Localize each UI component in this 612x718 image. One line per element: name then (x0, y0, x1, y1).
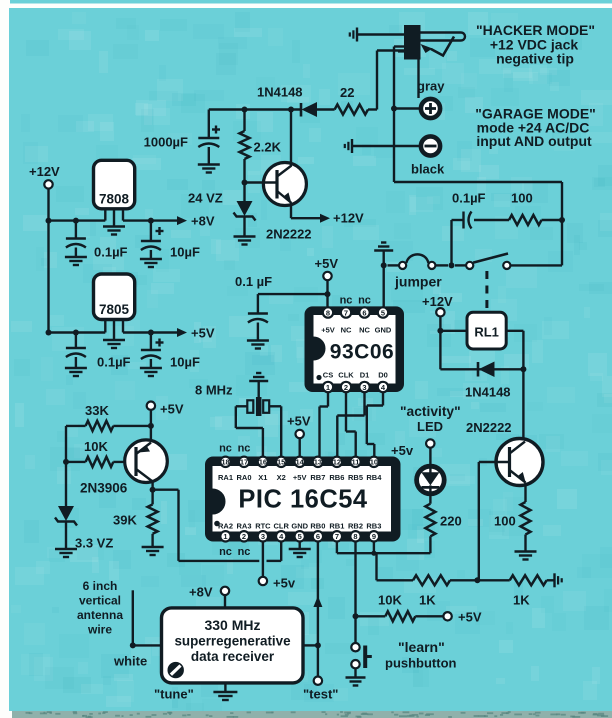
svg-text:jumper: jumper (394, 274, 442, 290)
svg-text:NC: NC (359, 326, 370, 335)
svg-text:+8V: +8V (189, 585, 213, 600)
svg-text:data receiver: data receiver (191, 649, 275, 664)
svg-text:1K: 1K (513, 593, 530, 608)
svg-text:3: 3 (362, 383, 366, 392)
svg-text:10µF: 10µF (170, 355, 200, 370)
svg-text:7: 7 (344, 308, 348, 317)
svg-text:+5V: +5V (293, 473, 307, 482)
svg-text:0.1µF: 0.1µF (97, 355, 131, 370)
svg-text:RA3: RA3 (236, 522, 251, 531)
svg-text:+8V: +8V (191, 214, 215, 229)
svg-text:8 MHz: 8 MHz (195, 383, 233, 398)
svg-text:2: 2 (242, 532, 246, 541)
svg-text:RL1: RL1 (474, 325, 499, 340)
svg-text:+5V: +5V (287, 414, 311, 429)
svg-text:RB1: RB1 (329, 522, 344, 531)
svg-text:RB2: RB2 (348, 522, 363, 531)
svg-text:CLR: CLR (273, 522, 289, 531)
svg-text:0.1µF: 0.1µF (94, 245, 128, 260)
svg-text:X2: X2 (277, 473, 286, 482)
svg-text:14: 14 (296, 458, 305, 467)
svg-text:2: 2 (344, 383, 348, 392)
svg-text:CLK: CLK (338, 371, 354, 380)
svg-text:black: black (411, 162, 445, 177)
svg-text:+5v: +5v (391, 443, 414, 458)
svg-text:2N2222: 2N2222 (266, 227, 312, 242)
svg-text:X1: X1 (258, 473, 267, 482)
svg-text:+12V: +12V (422, 294, 453, 309)
svg-text:3.3 VZ: 3.3 VZ (75, 536, 113, 551)
svg-text:1: 1 (326, 383, 330, 392)
svg-text:5: 5 (298, 532, 302, 541)
svg-text:2N3906: 2N3906 (80, 481, 128, 496)
svg-text:nc: nc (358, 295, 371, 307)
svg-text:1N4148: 1N4148 (257, 85, 303, 100)
svg-text:RB3: RB3 (366, 522, 381, 531)
svg-text:+5V: +5V (160, 402, 184, 417)
svg-text:12: 12 (333, 458, 341, 467)
svg-text:RA1: RA1 (218, 473, 233, 482)
svg-text:24 VZ: 24 VZ (188, 191, 223, 206)
svg-text:superregenerative: superregenerative (174, 634, 290, 649)
svg-text:RB4: RB4 (366, 473, 382, 482)
svg-text:GND: GND (291, 522, 308, 531)
svg-text:nc: nc (238, 443, 251, 455)
svg-text:17: 17 (240, 458, 248, 467)
svg-text:+12V: +12V (333, 211, 364, 226)
svg-text:nc: nc (219, 443, 232, 455)
svg-text:330 MHz: 330 MHz (204, 617, 260, 633)
svg-text:RB7: RB7 (310, 473, 325, 482)
svg-text:D0: D0 (378, 371, 388, 380)
svg-text:8: 8 (353, 532, 357, 541)
svg-text:10K: 10K (378, 593, 402, 608)
svg-text:wire: wire (87, 623, 112, 637)
svg-text:33K: 33K (85, 403, 109, 418)
svg-text:RB5: RB5 (348, 473, 363, 482)
svg-text:RA0: RA0 (236, 473, 251, 482)
svg-text:2.2K: 2.2K (254, 140, 282, 155)
svg-text:22: 22 (340, 85, 354, 100)
svg-text:+5V: +5V (315, 256, 339, 271)
svg-text:100: 100 (511, 191, 533, 206)
svg-text:10K: 10K (84, 439, 108, 454)
svg-text:5: 5 (381, 308, 385, 317)
svg-text:nc: nc (340, 295, 353, 307)
svg-text:10: 10 (370, 458, 378, 467)
svg-text:D1: D1 (360, 371, 370, 380)
svg-text:18: 18 (221, 458, 229, 467)
svg-text:6 inch: 6 inch (83, 579, 118, 593)
svg-text:220: 220 (440, 514, 462, 529)
svg-text:nc: nc (219, 546, 232, 558)
svg-text:2N2222: 2N2222 (466, 420, 512, 435)
svg-text:"learn": "learn" (398, 639, 445, 655)
svg-text:7: 7 (335, 532, 339, 541)
svg-text:6: 6 (316, 532, 320, 541)
svg-text:7805: 7805 (99, 302, 130, 317)
svg-text:0.1µF: 0.1µF (452, 191, 486, 206)
svg-text:6: 6 (362, 308, 366, 317)
svg-text:16: 16 (259, 458, 267, 467)
svg-text:1000µF: 1000µF (144, 135, 188, 150)
svg-text:RB0: RB0 (310, 522, 325, 531)
svg-text:13: 13 (314, 458, 322, 467)
svg-text:LED: LED (417, 419, 443, 434)
svg-text:1N4148: 1N4148 (465, 385, 511, 400)
svg-text:"tune": "tune" (154, 687, 194, 702)
svg-text:3: 3 (261, 532, 265, 541)
svg-text:10µF: 10µF (170, 245, 200, 260)
svg-text:7808: 7808 (99, 192, 130, 207)
svg-text:GND: GND (375, 326, 392, 335)
svg-text:"activity": "activity" (400, 404, 461, 419)
svg-text:white: white (113, 654, 147, 669)
svg-text:negative tip: negative tip (496, 51, 574, 67)
svg-text:15: 15 (277, 458, 285, 467)
svg-text:+5V: +5V (458, 610, 482, 625)
svg-text:PIC 16C54: PIC 16C54 (238, 486, 368, 514)
svg-text:CS: CS (323, 371, 333, 380)
svg-text:11: 11 (352, 458, 360, 467)
svg-text:+5V: +5V (321, 326, 335, 335)
svg-text:93C06: 93C06 (330, 341, 394, 364)
svg-text:RA2: RA2 (218, 522, 233, 531)
svg-text:1: 1 (223, 532, 227, 541)
svg-text:100: 100 (494, 514, 516, 529)
svg-text:+12V: +12V (29, 164, 60, 179)
svg-text:RTC: RTC (255, 522, 271, 531)
svg-text:8: 8 (326, 308, 330, 317)
svg-text:input AND output: input AND output (476, 133, 592, 149)
svg-text:pushbutton: pushbutton (385, 655, 457, 670)
svg-text:nc: nc (238, 546, 251, 558)
svg-text:"test": "test" (303, 687, 338, 702)
svg-text:NC: NC (341, 326, 352, 335)
svg-text:39K: 39K (113, 513, 137, 528)
svg-text:9: 9 (372, 532, 376, 541)
svg-text:RB6: RB6 (329, 473, 344, 482)
svg-text:0.1 µF: 0.1 µF (235, 274, 272, 289)
svg-text:antenna: antenna (77, 608, 123, 622)
svg-text:+5V: +5V (191, 326, 215, 341)
svg-text:+5v: +5v (273, 576, 296, 591)
svg-text:vertical: vertical (79, 594, 121, 608)
svg-text:gray: gray (417, 79, 445, 94)
svg-text:1K: 1K (419, 593, 436, 608)
